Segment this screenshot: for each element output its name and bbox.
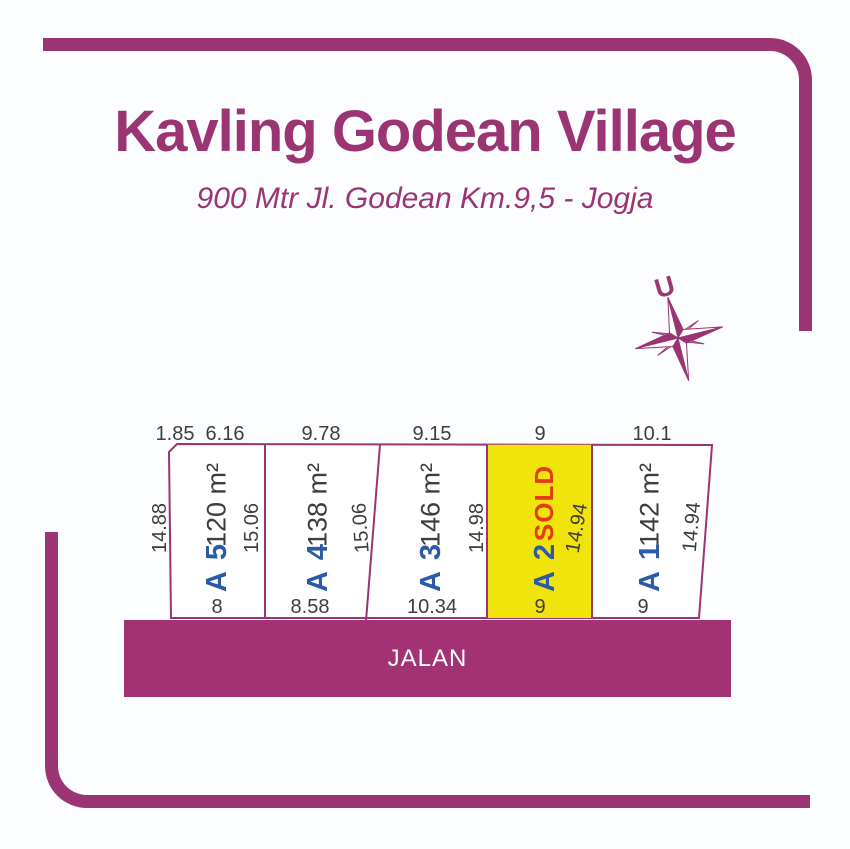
dim-bottom-a4: 8.58 xyxy=(291,596,330,618)
dim-a5-a4: 15.06 xyxy=(241,503,263,553)
dim-bottom-a1: 9 xyxy=(637,596,648,618)
dim-bottom-a3: 10.34 xyxy=(407,596,457,618)
dim-top-bevel: 1.85 xyxy=(156,425,195,445)
road-bar: JALAN xyxy=(124,620,731,697)
plot-a3-area: 146 m² xyxy=(415,463,445,547)
dim-top-a4: 9.78 xyxy=(302,425,341,445)
page-subtitle: 900 Mtr Jl. Godean Km.9,5 - Jogja xyxy=(0,182,850,216)
dim-top-a2: 9 xyxy=(534,425,545,445)
plot-a2-sold-label: SOLD xyxy=(529,465,559,541)
dim-top-a1: 10.1 xyxy=(633,425,672,445)
page-title: Kavling Godean Village xyxy=(0,98,850,165)
plot-a4-area: 138 m² xyxy=(302,463,332,547)
dim-a3-a2: 14.98 xyxy=(466,503,488,553)
plot-a2-id: A 2 xyxy=(529,542,561,592)
dim-bottom-a2: 9 xyxy=(534,596,545,618)
dim-left-side: 14.88 xyxy=(149,503,171,553)
compass-star-icon xyxy=(625,286,733,391)
dim-top-a3: 9.15 xyxy=(413,425,452,445)
compass-rose: U xyxy=(608,258,748,393)
plot-a5-area: 120 m² xyxy=(201,463,231,547)
compass-north-label: U xyxy=(651,270,678,304)
dim-a4-a3: 15.06 xyxy=(348,502,373,553)
plot-a1-area: 142 m² xyxy=(634,463,664,547)
dim-a1-right: 14.94 xyxy=(679,501,705,553)
dim-top-a5: 6.16 xyxy=(206,425,245,445)
plot-a3-id: A 3 xyxy=(415,542,447,592)
dim-bottom-a5: 8 xyxy=(211,596,222,618)
plot-a1-id: A 1 xyxy=(634,542,666,592)
plot-a4-id: A 4 xyxy=(302,542,334,592)
plot-a5-id: A 5 xyxy=(201,542,233,592)
road-label: JALAN xyxy=(388,645,468,673)
